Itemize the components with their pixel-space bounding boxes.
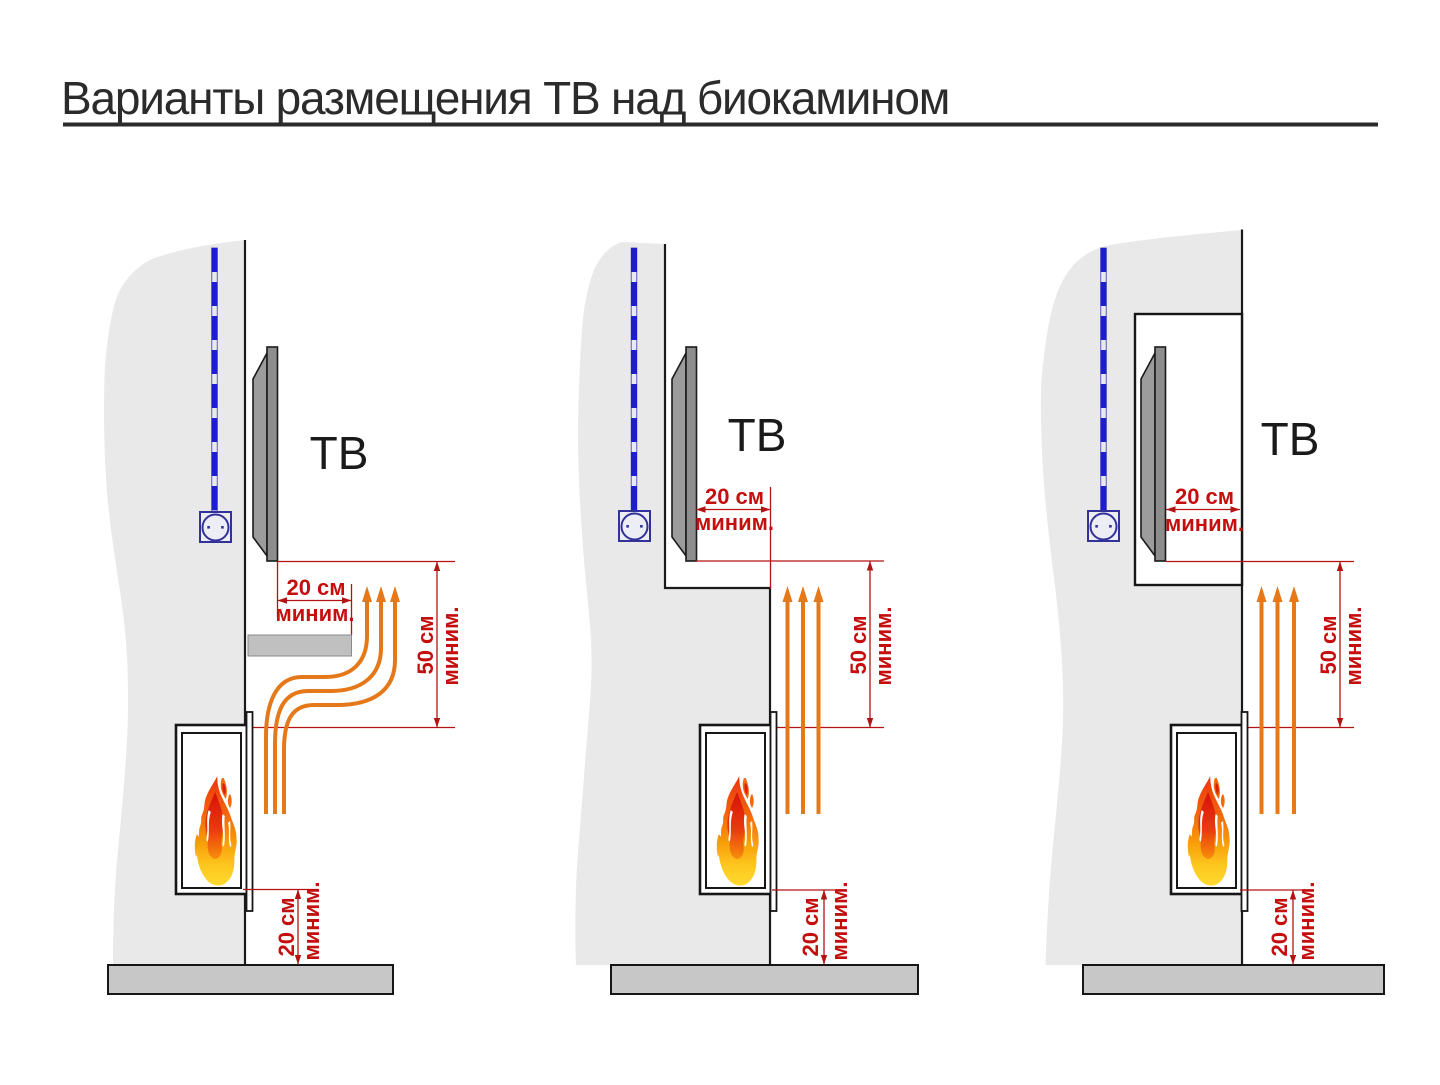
svg-text:миним.: миним. [299,882,324,961]
svg-text:ТВ: ТВ [310,427,369,479]
svg-text:20 см: 20 см [286,575,345,600]
svg-text:Варианты размещения ТВ над био: Варианты размещения ТВ над биокамином [61,72,949,124]
svg-text:20 см: 20 см [798,897,823,956]
svg-text:миним.: миним. [1294,882,1319,961]
svg-text:миним.: миним. [871,607,896,686]
svg-text:ТВ: ТВ [728,409,787,461]
svg-text:миним.: миним. [827,882,852,961]
svg-text:50 см: 50 см [1316,615,1341,674]
svg-text:20 см: 20 см [1175,484,1234,509]
svg-text:50 см: 50 см [413,615,438,674]
svg-text:ТВ: ТВ [1261,413,1320,465]
svg-text:миним.: миним. [695,510,774,535]
svg-text:миним.: миним. [1341,607,1366,686]
svg-text:миним.: миним. [1165,511,1244,536]
svg-text:20 см: 20 см [1267,897,1292,956]
svg-text:миним.: миним. [276,601,355,626]
svg-text:20 см: 20 см [705,484,764,509]
svg-text:миним.: миним. [438,607,463,686]
svg-text:20 см: 20 см [274,897,299,956]
svg-text:50 см: 50 см [846,615,871,674]
